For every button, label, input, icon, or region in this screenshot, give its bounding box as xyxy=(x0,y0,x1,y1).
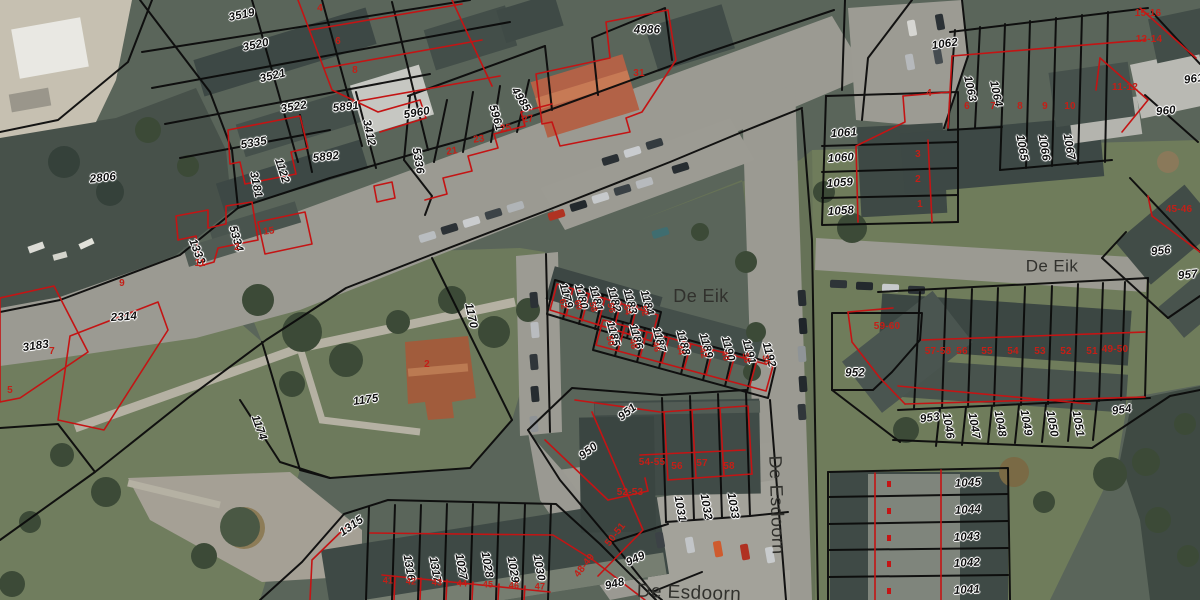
map-viewport[interactable]: 3519352035213522589134125335589259605961… xyxy=(0,0,1200,600)
aerial-backdrop xyxy=(0,0,1200,600)
